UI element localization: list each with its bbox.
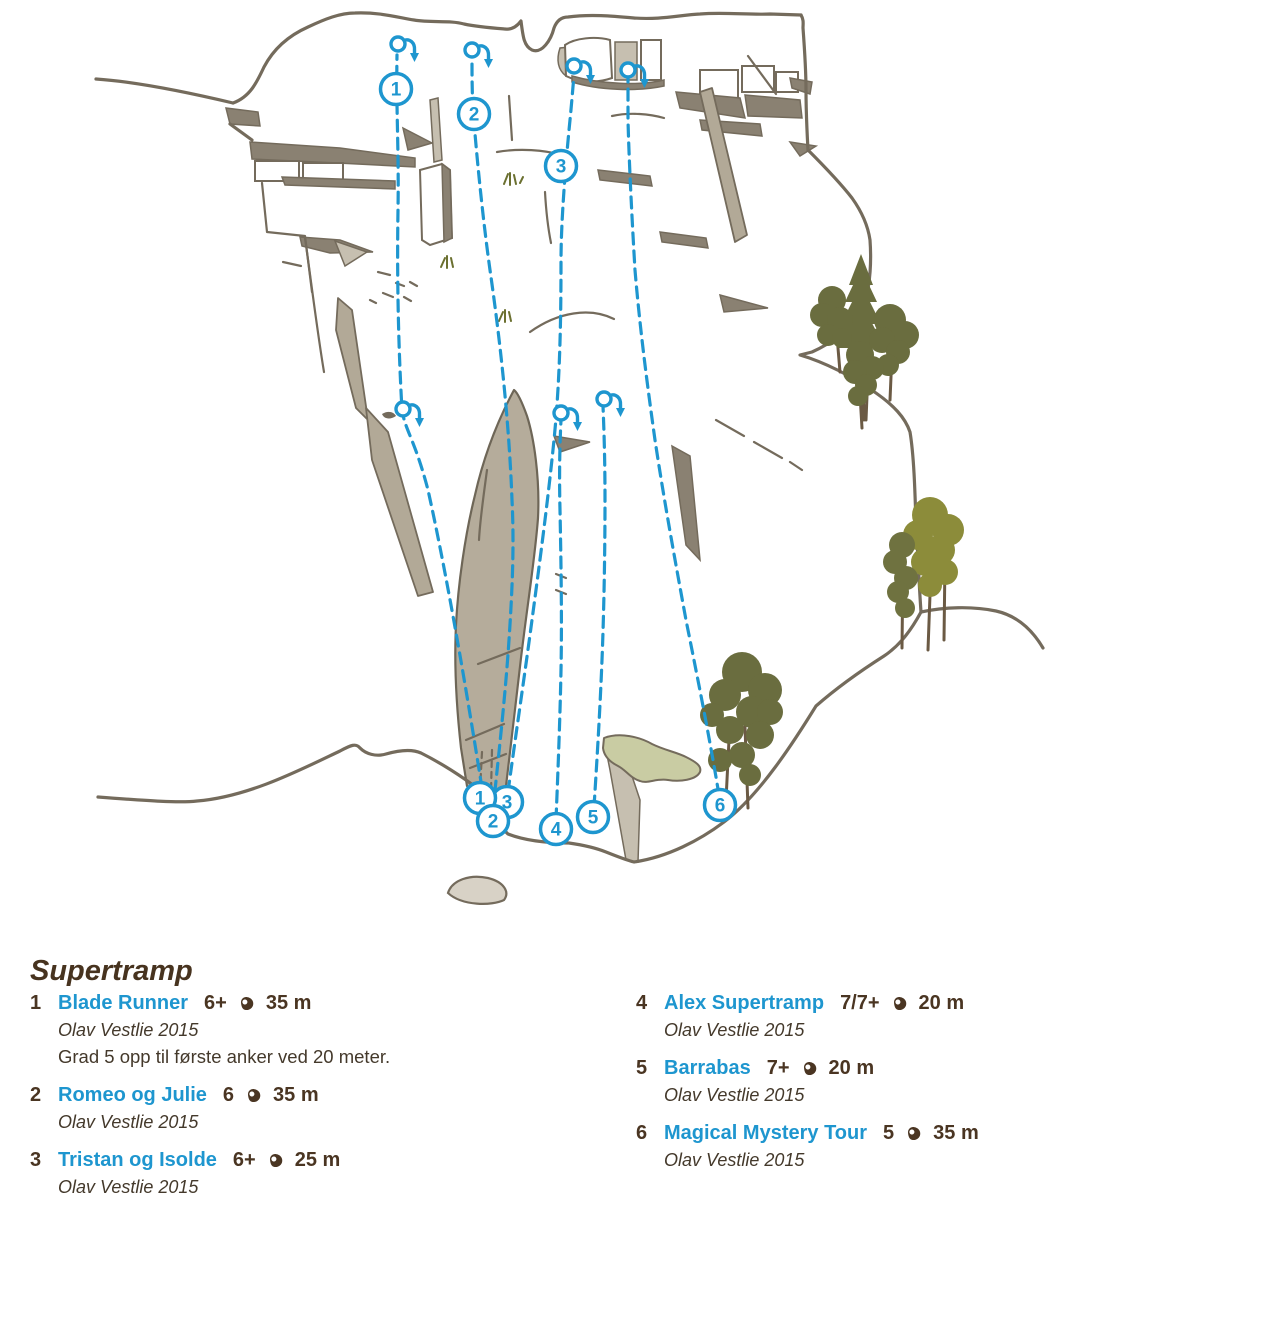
anchor-icon [396, 402, 424, 427]
route-name: Romeo og Julie [58, 1082, 207, 1109]
svg-text:4: 4 [551, 820, 562, 841]
route-first-ascent: Olav Vestlie 2015 [636, 1082, 1216, 1108]
svg-text:6: 6 [715, 796, 726, 817]
route-list-item: 4 Alex Supertramp 7/7+ 20 m Olav Vestlie… [636, 990, 1216, 1043]
route-first-ascent: Olav Vestlie 2015 [30, 1174, 610, 1200]
route-length-label: 20 m [919, 990, 965, 1017]
route-list-item: 6 Magical Mystery Tour 5 35 m Olav Vestl… [636, 1120, 1216, 1173]
bolt-icon [245, 1087, 262, 1104]
route-grade: 6+ [204, 990, 227, 1017]
guidebook-page: 123312456 Supertramp 1 Blade Runner 6+ 3… [0, 0, 1277, 1333]
route-grade: 6+ [233, 1147, 256, 1174]
route-number-marker: 6 [705, 790, 736, 821]
route-number-marker: 2 [478, 806, 509, 837]
route-number-marker: 3 [546, 151, 577, 182]
route-number: 5 [636, 1055, 664, 1082]
crag-title: Supertramp [30, 955, 193, 988]
bolt-icon [267, 1152, 284, 1169]
route-number-marker: 5 [578, 802, 609, 833]
route-name: Barrabas [664, 1055, 751, 1082]
route-number-marker: 1 [381, 74, 412, 105]
svg-text:2: 2 [469, 105, 480, 126]
svg-text:1: 1 [391, 80, 402, 101]
route-head: 6 Magical Mystery Tour 5 35 m [636, 1120, 1216, 1147]
route-head: 5 Barrabas 7+ 20 m [636, 1055, 1216, 1082]
route-list-item: 2 Romeo og Julie 6 35 m Olav Vestlie 201… [30, 1082, 610, 1135]
bolt-icon [238, 995, 255, 1012]
route-length-label: 35 m [273, 1082, 319, 1109]
route-length-label: 25 m [295, 1147, 341, 1174]
anchor-icon [597, 392, 625, 417]
route-list-item: 5 Barrabas 7+ 20 m Olav Vestlie 2015 [636, 1055, 1216, 1108]
route-note: Grad 5 opp til første anker ved 20 meter… [30, 1043, 610, 1070]
route-grade: 5 [883, 1120, 894, 1147]
route-number: 1 [30, 990, 58, 1017]
route-number: 4 [636, 990, 664, 1017]
route-head: 3 Tristan og Isolde 6+ 25 m [30, 1147, 610, 1174]
route-number: 2 [30, 1082, 58, 1109]
route-number: 3 [30, 1147, 58, 1174]
bolt-icon [905, 1125, 922, 1142]
svg-text:3: 3 [556, 157, 567, 178]
anchor-icon [391, 37, 419, 62]
route-first-ascent: Olav Vestlie 2015 [30, 1109, 610, 1135]
route-first-ascent: Olav Vestlie 2015 [30, 1017, 610, 1043]
route-number-marker: 2 [459, 99, 490, 130]
route-first-ascent: Olav Vestlie 2015 [636, 1017, 1216, 1043]
svg-text:5: 5 [588, 808, 599, 829]
route-list-column-left: 1 Blade Runner 6+ 35 m Olav Vestlie 2015… [30, 990, 610, 1212]
route-grade: 7+ [767, 1055, 790, 1082]
route-list-item: 3 Tristan og Isolde 6+ 25 m Olav Vestlie… [30, 1147, 610, 1200]
route-name: Blade Runner [58, 990, 188, 1017]
route-grade: 7/7+ [840, 990, 879, 1017]
route-head: 1 Blade Runner 6+ 35 m [30, 990, 610, 1017]
route-length-label: 35 m [266, 990, 312, 1017]
route-name: Magical Mystery Tour [664, 1120, 867, 1147]
climbing-topo-illustration: 123312456 [0, 0, 1277, 920]
bolt-icon [801, 1060, 818, 1077]
route-number-marker: 4 [541, 814, 572, 845]
anchor-icon [465, 43, 493, 68]
route-head: 2 Romeo og Julie 6 35 m [30, 1082, 610, 1109]
trees-upper [810, 254, 919, 428]
route-name: Tristan og Isolde [58, 1147, 217, 1174]
route-first-ascent: Olav Vestlie 2015 [636, 1147, 1216, 1173]
route-length-label: 35 m [933, 1120, 979, 1147]
svg-text:2: 2 [488, 812, 499, 833]
route-head: 4 Alex Supertramp 7/7+ 20 m [636, 990, 1216, 1017]
route-grade: 6 [223, 1082, 234, 1109]
route-length-label: 20 m [829, 1055, 875, 1082]
bolt-icon [891, 995, 908, 1012]
route-name: Alex Supertramp [664, 990, 824, 1017]
trees-middle [883, 497, 964, 650]
route-line-4 [556, 420, 561, 820]
route-list-column-right: 4 Alex Supertramp 7/7+ 20 m Olav Vestlie… [636, 990, 1216, 1185]
trees-lower [700, 652, 783, 808]
route-list-item: 1 Blade Runner 6+ 35 m Olav Vestlie 2015… [30, 990, 610, 1070]
route-number: 6 [636, 1120, 664, 1147]
anchor-icon [554, 406, 582, 431]
